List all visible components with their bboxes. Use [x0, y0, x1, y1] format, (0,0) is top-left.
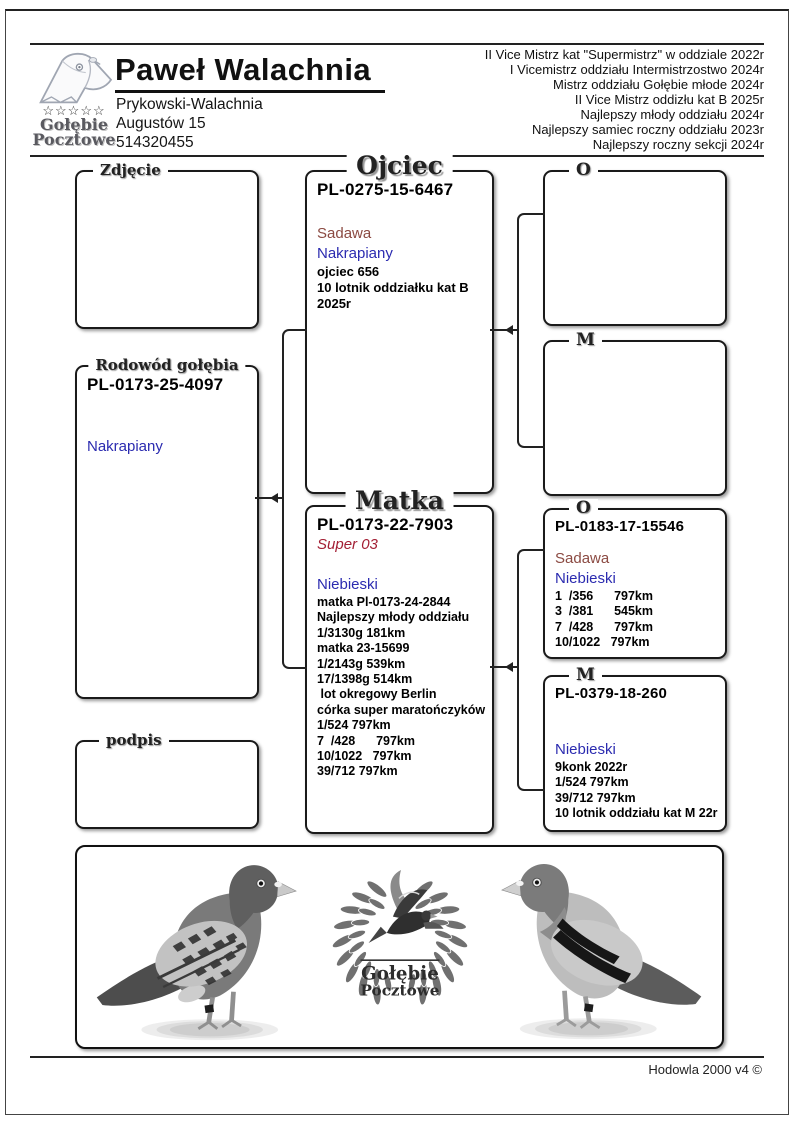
- father-strain: Sadawa: [317, 224, 482, 244]
- signature-box: podpis: [75, 740, 259, 829]
- connector-arrow: [505, 325, 513, 335]
- header-top-rule: [30, 43, 764, 45]
- connector-arrow: [270, 493, 278, 503]
- mother-box: Matka PL-0173-22-7903 Super 03 Niebieski…: [305, 505, 494, 834]
- gp-mm-color: Niebieski: [555, 740, 715, 760]
- right-pigeon-image: [479, 853, 707, 1048]
- achievement-line: Najlepszy roczny sekcji 2024r: [334, 137, 764, 152]
- gp-mf-ring-number: PL-0183-17-15546: [555, 518, 715, 535]
- footer-rule: [30, 1056, 764, 1058]
- gp-father-father-box: O: [543, 170, 727, 326]
- mother-ring-number: PL-0173-22-7903: [317, 515, 482, 535]
- father-notes: ojciec 656 10 lotnik oddziałku kat B 202…: [317, 264, 482, 312]
- footer-text: Hodowla 2000 v4 ©: [648, 1062, 762, 1077]
- gp-ff-legend: O: [569, 161, 598, 179]
- mother-color: Niebieski: [317, 575, 482, 595]
- gp-mm-notes: 9konk 2022r 1/524 797km 39/712 797km 10 …: [555, 760, 715, 822]
- achievement-line: I Vicemistrz oddziału Intermistrzostwo 2…: [334, 62, 764, 77]
- connector-arrow: [505, 662, 513, 672]
- gp-mf-notes: 1 /356 797km 3 /381 545km 7 /428 797km 1…: [555, 589, 715, 651]
- mother-notes: matka Pl-0173-24-2844 Najlepszy młody od…: [317, 595, 482, 780]
- subject-box: Rodowód gołębia PL-0173-25-4097 Nakrapia…: [75, 365, 259, 699]
- achievement-line: Mistrz oddziału Gołębie młode 2024r: [334, 77, 764, 92]
- gp-mother-mother-box: M PL-0379-18-260 Niebieski 9konk 2022r 1…: [543, 675, 727, 832]
- breeder-address: Prykowski-Walachnia Augustów 15 51432045…: [116, 95, 263, 152]
- address-line: 514320455: [116, 133, 263, 152]
- subject-ring-number: PL-0173-25-4097: [87, 375, 247, 395]
- connector-subject-parents: [282, 329, 307, 669]
- address-line: Prykowski-Walachnia: [116, 95, 263, 114]
- left-pigeon-image: [91, 855, 319, 1048]
- achievement-line: Najlepszy młody oddziału 2024r: [334, 107, 764, 122]
- logo-text-line2: Pocztowe: [31, 132, 117, 147]
- wreath-logo: Gołębie Pocztowe: [324, 851, 476, 1044]
- mother-box-legend: Matka: [345, 488, 454, 514]
- father-ring-number: PL-0275-15-6467: [317, 180, 482, 200]
- achievement-line: II Vice Mistrz oddizłu kat B 2025r: [334, 92, 764, 107]
- achievement-line: II Vice Mistrz kat "Supermistrz" w oddzi…: [334, 47, 764, 62]
- connector-father-gps: [517, 213, 545, 448]
- gp-mf-strain: Sadawa: [555, 549, 715, 569]
- photo-box: Zdjęcie: [75, 170, 259, 329]
- gp-mm-legend: M: [569, 666, 602, 684]
- gp-mm-ring-number: PL-0379-18-260: [555, 685, 715, 702]
- mother-name: Super 03: [317, 535, 482, 555]
- gp-fm-legend: M: [569, 331, 602, 349]
- gp-mother-father-box: O PL-0183-17-15546 Sadawa Niebieski 1 /3…: [543, 508, 727, 659]
- subject-color: Nakrapiany: [87, 437, 247, 457]
- address-line: Augustów 15: [116, 114, 263, 133]
- father-box: Ojciec PL-0275-15-6467 Sadawa Nakrapiany…: [305, 170, 494, 494]
- banner-panel: Gołębie Pocztowe: [75, 845, 724, 1049]
- signature-box-legend: podpis: [99, 731, 169, 749]
- photo-box-legend: Zdjęcie: [93, 161, 168, 179]
- gp-father-mother-box: M: [543, 340, 727, 496]
- club-logo: ☆☆☆☆☆ Gołębie Pocztowe: [31, 50, 117, 147]
- gp-mf-legend: O: [569, 499, 598, 517]
- achievements-list: II Vice Mistrz kat "Supermistrz" w oddzi…: [334, 47, 764, 152]
- father-color: Nakrapiany: [317, 244, 482, 264]
- gp-mf-color: Niebieski: [555, 569, 715, 589]
- achievement-line: Najlepszy samiec roczny oddziału 2023r: [334, 122, 764, 137]
- father-box-legend: Ojciec: [346, 153, 453, 179]
- pedigree-page: ☆☆☆☆☆ Gołębie Pocztowe Paweł Walachnia P…: [0, 0, 794, 1123]
- connector-mother-gps: [517, 549, 545, 791]
- subject-box-legend: Rodowód gołębia: [88, 356, 245, 374]
- wreath-text-line2: Pocztowe: [361, 982, 440, 1000]
